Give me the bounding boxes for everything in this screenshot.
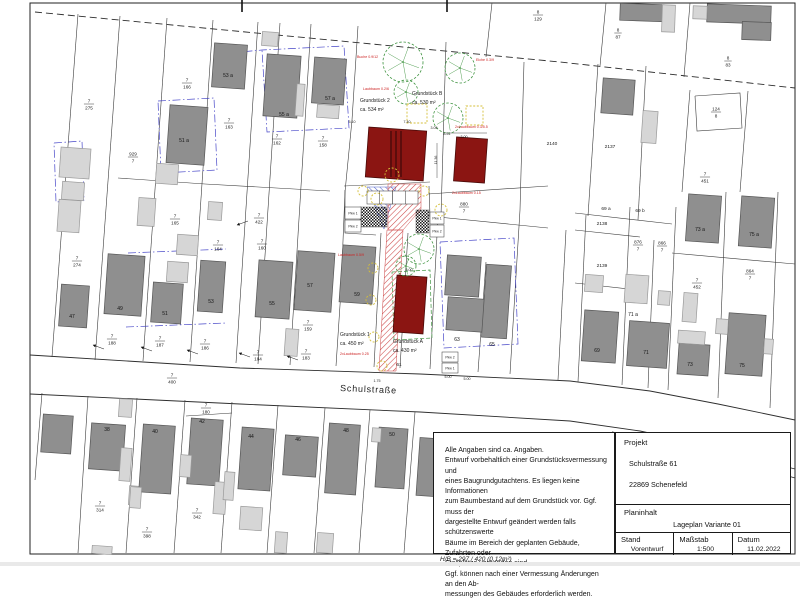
house-number-label: 73 a (695, 227, 705, 233)
parcel-number-label: 7159 (303, 319, 313, 331)
parcel-line (558, 230, 566, 380)
house-number-label: 63 (454, 337, 460, 343)
parcel-number-bottom: 7 (749, 275, 752, 280)
parcel-number-bottom: 451 (701, 178, 709, 183)
parcel-number-label: 8807 (459, 201, 469, 213)
stand-value: Vorentwurf (621, 546, 673, 553)
plot-name-label: Grundstück B (412, 91, 443, 97)
parcel-number-top: 929 (129, 151, 137, 156)
existing-annex (223, 472, 235, 501)
plan-title: Lageplan Variante 01 (624, 520, 790, 529)
parcel-number-top: 7 (204, 338, 207, 343)
paved-area (360, 207, 387, 227)
stand-label: Stand (621, 535, 673, 544)
parcel-number-label: 7422 (254, 212, 264, 224)
parcel-number-top: 7 (258, 212, 261, 217)
planned-building (393, 275, 427, 334)
dimension-label: 5.00 (445, 375, 452, 379)
parcel-line (684, 3, 690, 77)
parcel-number-top: 7 (76, 255, 79, 260)
existing-building (725, 313, 766, 376)
tree-annotation: Laubbaum 0.2/6 (363, 87, 389, 91)
notes-line: eines Baugrundgutachtens. Es liegen kein… (445, 477, 608, 498)
parcel-number-label: 8767 (633, 239, 643, 251)
parcel-number-top: 7 (171, 372, 174, 377)
house-number-label: 75 a (749, 232, 759, 238)
parcel-number-bottom: 87 (615, 34, 621, 39)
tree-spoke (460, 56, 464, 68)
parcel-number-label: 7186 (200, 338, 210, 350)
dimension-label: 1.75 (374, 379, 381, 383)
project-address-line2: 22869 Schenefeld (624, 480, 790, 489)
notes-line: zum Baumbestand auf dem Grundstück vor. … (445, 497, 608, 518)
parcel-number-label: 9297 (128, 151, 138, 163)
existing-annex (119, 448, 132, 482)
existing-annex (166, 261, 188, 282)
parcel-number-label: 2138 (597, 221, 608, 227)
parcel-number-bottom: 274 (73, 262, 81, 267)
house-number-label: 46 (295, 437, 301, 443)
existing-building (151, 282, 184, 324)
tree-spoke (408, 243, 419, 249)
house-number-label: 71 (643, 350, 649, 356)
parcel-number-label: 7274 (72, 255, 82, 267)
parcel-number-label: 7452 (692, 277, 702, 289)
existing-annex (239, 506, 263, 530)
plot-area-label: ca. 450 m² (340, 341, 364, 347)
parcel-number-label: 7184 (253, 349, 263, 361)
parking-stall (367, 191, 380, 204)
planting-marker (358, 186, 368, 196)
projekt-label: Projekt (624, 438, 790, 447)
parcel-number-label: 7342 (192, 507, 202, 519)
parcel-number-bottom: 163 (225, 124, 233, 129)
title-block-project-section: Projekt Schulstraße 61 22869 Schenefeld (616, 433, 790, 504)
existing-building (581, 310, 618, 363)
house-number-label: 55 (269, 301, 275, 307)
existing-annex (284, 329, 299, 357)
parcel-number-label: 61 (396, 362, 402, 368)
stall-label: Pkw 2 (348, 224, 357, 228)
parcel-number-bottom: 7 (637, 246, 640, 251)
existing-annex (274, 532, 287, 554)
parcel-line (35, 393, 42, 480)
house-number-label: 71 a (628, 312, 638, 318)
paved-area (416, 210, 429, 233)
existing-annex (316, 532, 333, 553)
parcel-number-top: 124 (712, 106, 720, 111)
dimension-label: 5.00 (464, 377, 471, 381)
existing-building (166, 105, 208, 166)
existing-building (104, 254, 145, 316)
stand-column: Stand Vorentwurf (616, 533, 673, 555)
parcel-number-top: 7 (196, 507, 199, 512)
existing-building (187, 418, 224, 486)
parcel-number-bottom: 7 (132, 158, 135, 163)
existing-annex (61, 181, 84, 200)
parcel-line (575, 213, 672, 224)
existing-building (742, 21, 772, 40)
parcel-number-label: 7183 (301, 348, 311, 360)
house-number-label: 49 (117, 306, 123, 312)
dimension-label: 7.40 (404, 120, 411, 124)
parcel-line (588, 64, 598, 216)
parcel-number-label: 883 (724, 55, 731, 67)
parcel-number-top: 7 (307, 319, 310, 324)
parcel-number-bottom: 129 (534, 16, 542, 21)
parcel-number-label: 7187 (155, 335, 165, 347)
parcel-number-label: 7188 (107, 333, 117, 345)
parcel-number-label: 8667 (657, 240, 667, 252)
parcel-pointer-arrow (93, 345, 104, 349)
massstab-column: Maßstab 1:500 (673, 533, 731, 555)
tree-annotation: Eiche 0.3/9 (476, 58, 494, 62)
parking-stall (405, 191, 418, 204)
tree-spoke (408, 249, 419, 255)
parcel-number-bottom: 162 (273, 140, 281, 145)
parcel-line (441, 42, 446, 216)
parcel-number-bottom: 314 (96, 507, 104, 512)
parcel-number-top: 7 (146, 526, 149, 531)
parcel-pointer-arrow (141, 347, 152, 351)
tree-spoke (448, 118, 450, 131)
existing-building (446, 297, 485, 333)
house-number-label: 65 (489, 342, 495, 348)
existing-building (707, 4, 772, 24)
parcel-number-top: 7 (228, 117, 231, 122)
house-number-label: 75 (739, 363, 745, 369)
house-number-label: 48 (343, 428, 349, 434)
tree-spoke (449, 68, 460, 74)
tree-spoke (403, 62, 419, 68)
existing-building (685, 194, 721, 243)
parcel-number-top: 7 (88, 98, 91, 103)
parcel-number-label: 7275 (84, 98, 94, 110)
parcel-number-label: 2139 (597, 263, 608, 269)
existing-annex (207, 202, 222, 221)
existing-building (481, 264, 511, 339)
parcel-number-top: 8 (727, 55, 730, 60)
existing-annex (372, 428, 382, 443)
existing-annex (624, 274, 649, 304)
existing-building (601, 78, 635, 115)
parcel-number-bottom: 159 (304, 326, 312, 331)
parcel-number-top: 7 (322, 135, 325, 140)
parcel-number-top: 7 (305, 348, 308, 353)
existing-annex (678, 330, 706, 345)
house-number-label: 59 (354, 292, 360, 298)
house-number-label: 51 (162, 311, 168, 317)
plot-name-label: Grundstück A (393, 339, 424, 345)
existing-building (677, 343, 710, 376)
parcel-number-top: 7 (257, 349, 260, 354)
parcel-pointer-arrow (239, 353, 250, 357)
parcel-number-bottom: 275 (85, 105, 93, 110)
house-number-label: 40 (152, 429, 158, 435)
parcel-number-bottom: 7 (463, 208, 466, 213)
existing-annex (682, 293, 698, 323)
existing-annex (641, 111, 658, 144)
house-number-label: 38 (104, 427, 110, 433)
existing-annex (59, 147, 91, 179)
parcel-pointer-arrow (237, 221, 248, 225)
plot-area-label: ca. 534 m² (360, 107, 384, 113)
parcel-number-bottom: 400 (168, 379, 176, 384)
parcel-number-top: 7 (217, 239, 220, 244)
stall-label: Pkw 1 (432, 216, 441, 220)
parcel-number-bottom: 164 (214, 246, 222, 251)
tree-annotation: Laubbaum 0.5/9 (338, 253, 364, 257)
plot-name-label: Grundstück 2 (360, 98, 390, 104)
existing-annex (317, 104, 340, 119)
parcel-number-top: 7 (261, 238, 264, 243)
parcel-line (600, 3, 606, 66)
parcel-number-top: 876 (634, 239, 642, 244)
parcel-number-top: 7 (99, 500, 102, 505)
parcel-number-label: 8647 (745, 268, 755, 280)
tree-spoke (437, 112, 448, 118)
parcel-number-label: 7398 (142, 526, 152, 538)
parcel-line (428, 216, 548, 228)
tree-spoke (419, 249, 431, 253)
tree-spoke (403, 62, 406, 79)
parcel-number-top: 864 (746, 268, 754, 273)
massstab-label: Maßstab (679, 535, 731, 544)
parcel-number-label: 7158 (318, 135, 328, 147)
planting-marker (369, 332, 379, 342)
house-number-label: 47 (69, 314, 75, 320)
parcel-number-bottom: 422 (255, 219, 263, 224)
parcel-number-bottom: 160 (258, 245, 266, 250)
existing-annex (179, 455, 192, 478)
parcel-number-bottom: 184 (254, 356, 262, 361)
tree-annotation: 2xLaubbaum 0.3/5.5 (455, 125, 488, 129)
parcel-number-bottom: 188 (108, 340, 116, 345)
tree-spoke (397, 92, 406, 97)
parcel-number-label: 887 (614, 27, 621, 39)
tree-spoke (403, 46, 409, 62)
datum-value: 11.02.2022 (738, 546, 790, 553)
parcel-number-bottom: 342 (193, 514, 201, 519)
tree-spoke (449, 62, 460, 68)
house-number-label: 51 a (179, 138, 189, 144)
parcel-number-bottom: 158 (319, 142, 327, 147)
parcel-line (314, 408, 325, 553)
title-block: Projekt Schulstraße 61 22869 Schenefeld … (615, 432, 791, 554)
stall-label: Pkw 1 (445, 366, 454, 370)
parcel-line (740, 91, 748, 192)
parcel-number-top: 7 (159, 335, 162, 340)
tree-spoke (419, 249, 421, 262)
tree-spoke (397, 87, 406, 92)
dimension-label: 5.10 (349, 120, 356, 124)
parcel-number-label: 1248 (711, 106, 721, 118)
parcel-number-top: 7 (111, 333, 114, 338)
existing-annex (262, 31, 279, 46)
parcel-number-label: 7163 (224, 117, 234, 129)
massstab-value: 1:500 (679, 546, 731, 553)
existing-building (41, 414, 74, 454)
tree-spoke (406, 82, 409, 92)
existing-annex (118, 399, 132, 418)
street-name-label: Schulstraße (340, 383, 397, 395)
house-number-label: 50 (389, 432, 395, 438)
parcel-line (430, 216, 438, 369)
parcel-number-bottom: 452 (693, 284, 701, 289)
existing-building (445, 255, 482, 297)
title-block-meta-section: Stand Vorentwurf Maßstab 1:500 Datum 11.… (616, 532, 790, 555)
existing-building (212, 43, 248, 89)
stall-label: Pkw 2 (432, 229, 441, 233)
parcel-line (672, 253, 795, 264)
existing-annex (176, 234, 198, 255)
parcel-line (359, 410, 370, 553)
existing-annex (137, 197, 156, 226)
house-number-label: 53 (208, 299, 214, 305)
existing-annex (715, 319, 728, 335)
parcel-number-label: 69 a (601, 206, 611, 212)
tree-annotation: 2xLaubbaum 0.25 (340, 352, 369, 356)
parcel-number-top: 7 (704, 171, 707, 176)
stall-label: Pkw 2 (445, 355, 454, 359)
parcel-line (35, 12, 795, 88)
plot-area-label: ca. 530 m² (412, 100, 436, 106)
existing-annex (763, 339, 773, 355)
parcel-number-bottom: 8 (715, 113, 718, 118)
planting-marker (466, 106, 483, 125)
parcel-number-top: 8 (537, 9, 540, 14)
existing-annex (662, 5, 676, 32)
existing-annex (92, 545, 113, 554)
tree-spoke (388, 54, 403, 63)
tree-annotation: 2xLaubbaum 0.15 (452, 191, 481, 195)
parcel-number-label: 7165 (170, 213, 180, 225)
page-edge (0, 562, 800, 566)
parcel-line (486, 3, 492, 57)
parcel-number-bottom: 166 (183, 84, 191, 89)
parcel-number-bottom: 165 (171, 220, 179, 225)
existing-annex (129, 487, 141, 509)
house-number-label: 57 (307, 283, 313, 289)
tree-spoke (448, 106, 452, 118)
notes-line: dargestellte Entwurf geändert werden fal… (445, 518, 608, 539)
plot-area-label: ca. 430 m² (393, 348, 417, 354)
notes-line: Entwurf vorbehaltlich einer Grundstücksv… (445, 456, 608, 477)
title-block-plan-section: Planinhalt Lageplan Variante 01 (616, 504, 790, 532)
existing-building (294, 251, 335, 312)
stall-label: Pkw 1 (348, 211, 357, 215)
parcel-number-label: 8129 (533, 9, 543, 21)
parcel-number-label: 7162 (272, 133, 282, 145)
parcel-number-top: 7 (696, 277, 699, 282)
existing-building (238, 427, 274, 491)
house-number-label: 55 a (279, 112, 289, 118)
parking-stall (380, 191, 393, 204)
parcel-number-label: 7180 (201, 402, 211, 414)
notes-line: Ggf. können nach einer Vermessung Änderu… (445, 570, 608, 591)
parcel-number-bottom: 187 (156, 342, 164, 347)
parcel-number-bottom: 83 (725, 62, 731, 67)
existing-building (59, 284, 90, 328)
existing-annex (693, 6, 707, 19)
plot-name-label: Grundstück 1 (340, 332, 370, 338)
dimension-label: 3.05 (431, 126, 438, 130)
tree-spoke (460, 68, 462, 81)
existing-annex (584, 274, 603, 292)
tree-spoke (437, 118, 448, 124)
project-address-line1: Schulstraße 61 (624, 459, 790, 468)
tree-spoke (388, 62, 403, 71)
notes-line: messungen des Gebäudes erforderlich werd… (445, 590, 608, 600)
existing-annex (57, 199, 81, 232)
parcel-line (510, 62, 524, 374)
notes-line: Alle Angaben sind ca. Angaben. (445, 446, 608, 456)
existing-building (620, 3, 666, 22)
parcel-number-label: 7164 (213, 239, 223, 251)
parking-stall (393, 191, 406, 204)
datum-label: Datum (738, 535, 790, 544)
house-number-label: 69 (594, 348, 600, 354)
parcel-line (428, 186, 548, 194)
house-number-label: 57 a (325, 96, 335, 102)
parcel-number-top: 8 (617, 27, 620, 32)
parcel-number-label: 7400 (167, 372, 177, 384)
tree-spoke (406, 92, 408, 102)
parcel-number-label: 7314 (95, 500, 105, 512)
parcel-line (118, 178, 330, 191)
existing-building (738, 196, 774, 248)
dimension-label: 5.00 (406, 268, 413, 272)
parcel-number-bottom: 180 (202, 409, 210, 414)
tree-spoke (419, 237, 423, 249)
parcel-number-label: 2137 (605, 144, 616, 150)
tree-spoke (448, 118, 460, 122)
notes-box: Alle Angaben sind ca. Angaben.Entwurf vo… (433, 432, 615, 554)
parcel-number-label: 69 b (635, 208, 645, 214)
parcel-number-top: 7 (276, 133, 279, 138)
parcel-line (682, 90, 690, 192)
house-number-label: 42 (199, 419, 205, 425)
parcel-number-bottom: 186 (201, 345, 209, 350)
parcel-number-label: 7451 (700, 171, 710, 183)
tree-annotation: Buche 0.9/12 (357, 55, 378, 59)
parcel-number-top: 880 (460, 201, 468, 206)
dimension-label: 8.51 (444, 132, 451, 136)
house-number-label: 73 (687, 362, 693, 368)
dimension-label: 3.00 (461, 135, 468, 139)
parcel-number-top: 7 (205, 402, 208, 407)
house-number-label: 44 (248, 434, 254, 440)
parcel-number-bottom: 183 (302, 355, 310, 360)
parcel-line (78, 396, 88, 553)
tree-spoke (460, 68, 472, 72)
parcel-number-bottom: 398 (143, 533, 151, 538)
parcel-pointer-arrow (187, 350, 198, 354)
planinhalt-label: Planinhalt (624, 508, 790, 517)
existing-building (626, 321, 669, 369)
existing-annex (658, 291, 671, 306)
dimension-label: 11.36 (434, 156, 438, 165)
datum-column: Datum 11.02.2022 (732, 533, 790, 555)
parcel-number-bottom: 7 (661, 247, 664, 252)
parcel-number-top: 7 (186, 77, 189, 82)
existing-annex (155, 163, 178, 184)
parcel-number-top: 7 (174, 213, 177, 218)
parcel-number-label: 7166 (182, 77, 192, 89)
planned-building (454, 137, 488, 183)
parcel-number-top: 866 (658, 240, 666, 245)
existing-building (255, 260, 293, 319)
